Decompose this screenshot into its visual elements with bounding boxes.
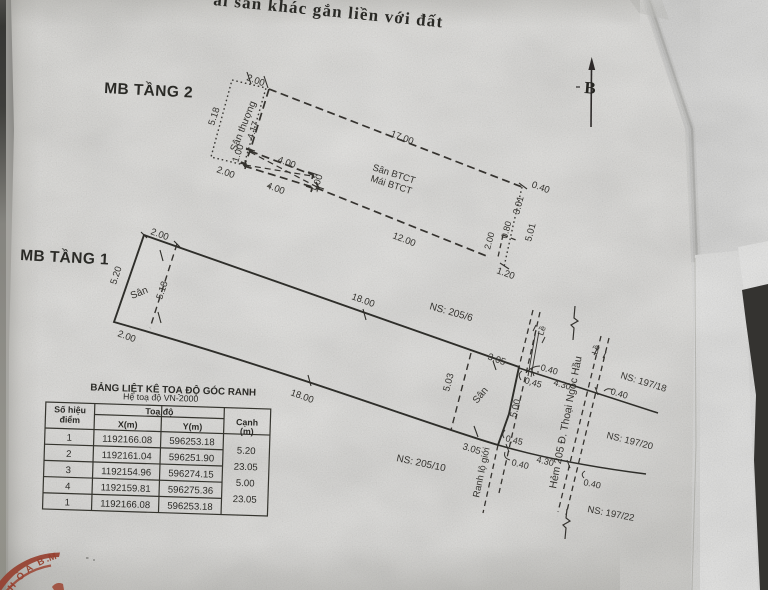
svg-text:596253.18: 596253.18 <box>167 501 213 513</box>
svg-text:1: 1 <box>66 433 72 444</box>
svg-text:596253.18: 596253.18 <box>169 436 215 448</box>
svg-text:4: 4 <box>65 481 71 492</box>
svg-text:X(m): X(m) <box>118 419 138 430</box>
svg-text:Toạ độ: Toạ độ <box>145 406 174 417</box>
svg-text:Y(m): Y(m) <box>183 421 203 432</box>
svg-text:1192159.81: 1192159.81 <box>101 482 151 495</box>
svg-text:(m): (m) <box>240 426 254 436</box>
svg-text:1: 1 <box>64 497 70 508</box>
svg-text:3: 3 <box>65 465 71 476</box>
svg-text:B: B <box>584 78 597 98</box>
svg-text:1192154.96: 1192154.96 <box>101 466 151 479</box>
svg-text:5.00: 5.00 <box>236 478 255 490</box>
svg-text:596274.15: 596274.15 <box>168 468 214 480</box>
svg-text:1192166.08: 1192166.08 <box>100 499 150 512</box>
svg-text:596275.36: 596275.36 <box>168 484 214 496</box>
svg-text:2: 2 <box>66 449 72 460</box>
svg-text:1192161.04: 1192161.04 <box>102 450 153 463</box>
svg-text:23.05: 23.05 <box>233 494 257 506</box>
svg-text:596251.90: 596251.90 <box>169 452 215 464</box>
svg-text:điểm: điểm <box>59 414 80 425</box>
svg-text:5.20: 5.20 <box>237 446 256 458</box>
svg-text:23.05: 23.05 <box>234 462 258 474</box>
svg-text:1192166.08: 1192166.08 <box>102 434 152 447</box>
